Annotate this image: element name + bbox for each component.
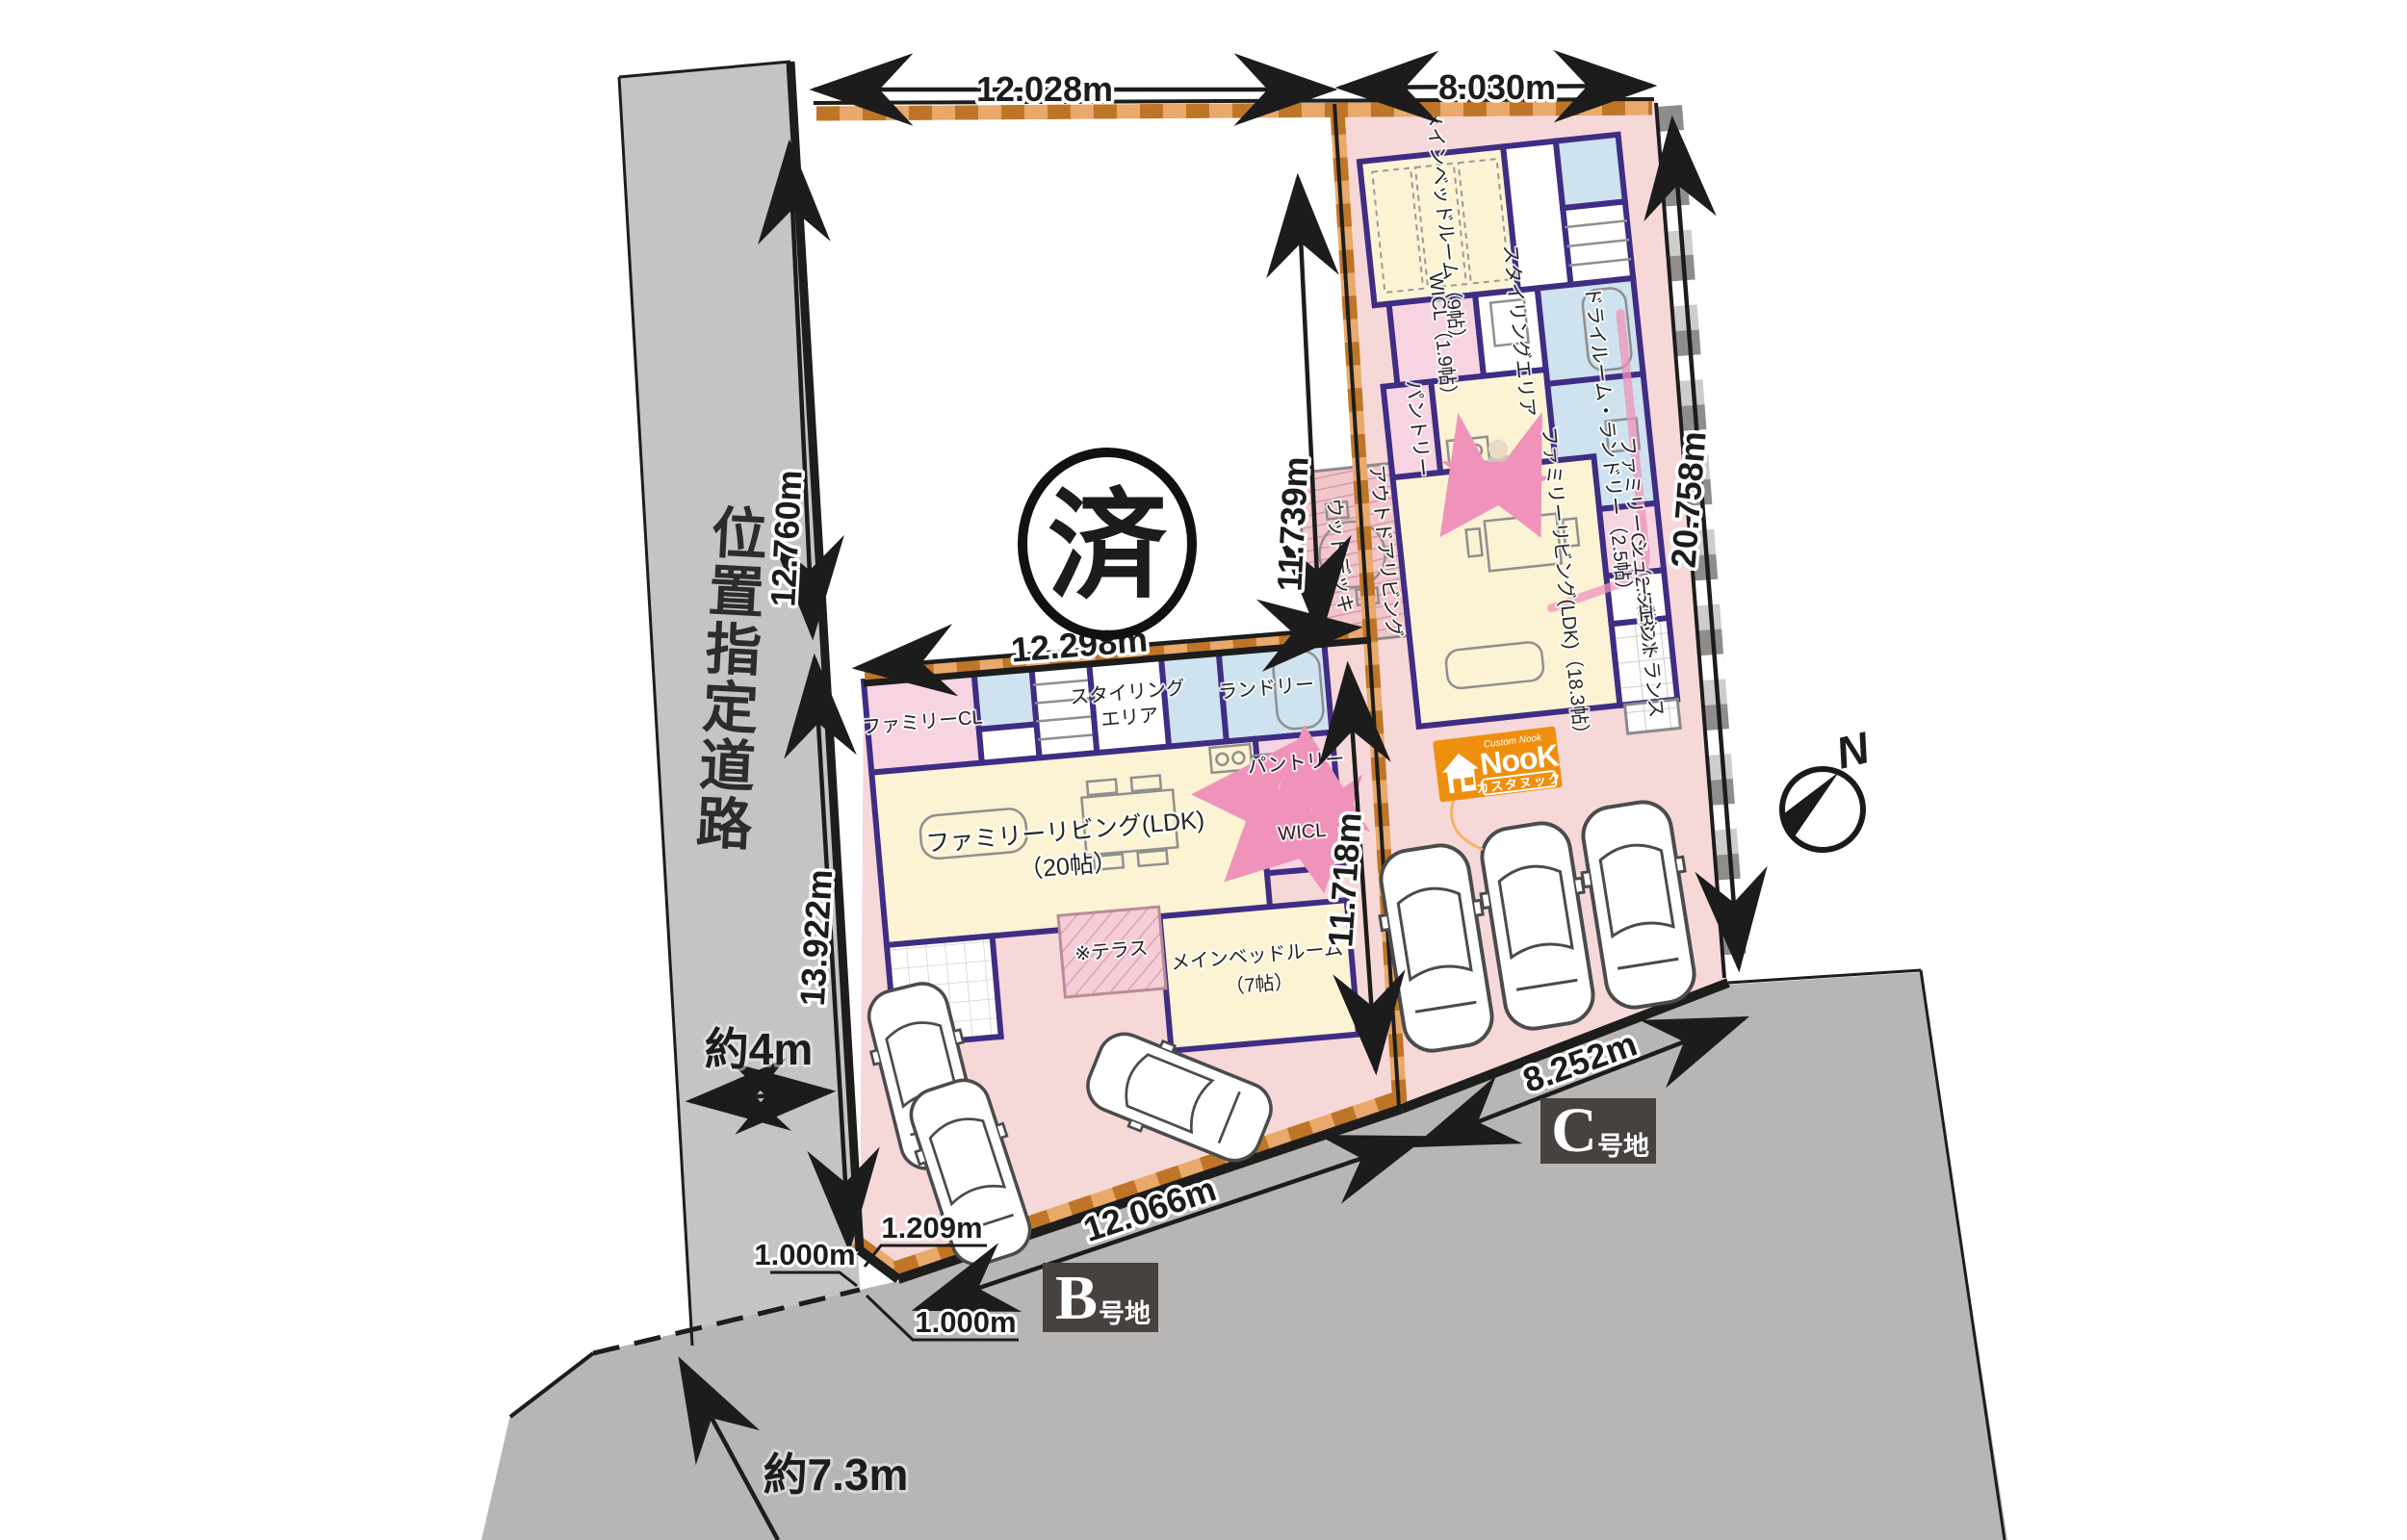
dim-corner-offset-left-label: 1.000m	[754, 1238, 855, 1271]
lot-c-suffix: 号地	[1597, 1132, 1649, 1161]
dim-corner-cut-label: 1.209m	[881, 1211, 982, 1245]
logo-house-door	[1453, 779, 1462, 793]
dim-corner-offset-bottom-label: 1.000m	[915, 1305, 1016, 1339]
lot-b-letter: B	[1055, 1263, 1098, 1333]
b-stairs	[1031, 662, 1097, 758]
sold-stamp: 済	[1022, 452, 1192, 635]
dim-top-right-label: 8.030m	[1438, 67, 1556, 107]
c-toilet-room	[1556, 135, 1625, 208]
lot-b-badge: B 号地	[1043, 1263, 1158, 1333]
dim-top-left-label: 12.028m	[976, 69, 1113, 109]
dim-south-road-width-label: 約7.3m	[764, 1450, 909, 1500]
sold-stamp-text: 済	[1048, 480, 1168, 613]
lot-c-badge: C 号地	[1540, 1095, 1656, 1166]
lot-c-letter: C	[1551, 1095, 1597, 1166]
b-wicl-label: WICL	[1278, 820, 1328, 845]
logo-house-window	[1464, 777, 1474, 785]
dim-lot-a-right-label: 11.739m	[1269, 455, 1315, 592]
dim-road-upper-label: 12.760m	[763, 469, 809, 607]
lot-b-suffix: 号地	[1099, 1299, 1151, 1328]
site-plan-page: ファミリーCL スタイリング エリア ランドリー ファミリーリビング(LDK) …	[0, 0, 2407, 1540]
dim-road-lower-label: 13.922m	[792, 868, 840, 1007]
dim-road-width-label: 約4m	[705, 1024, 813, 1074]
site-plan-drawing: ファミリーCL スタイリング エリア ランドリー ファミリーリビング(LDK) …	[0, 0, 2407, 1540]
